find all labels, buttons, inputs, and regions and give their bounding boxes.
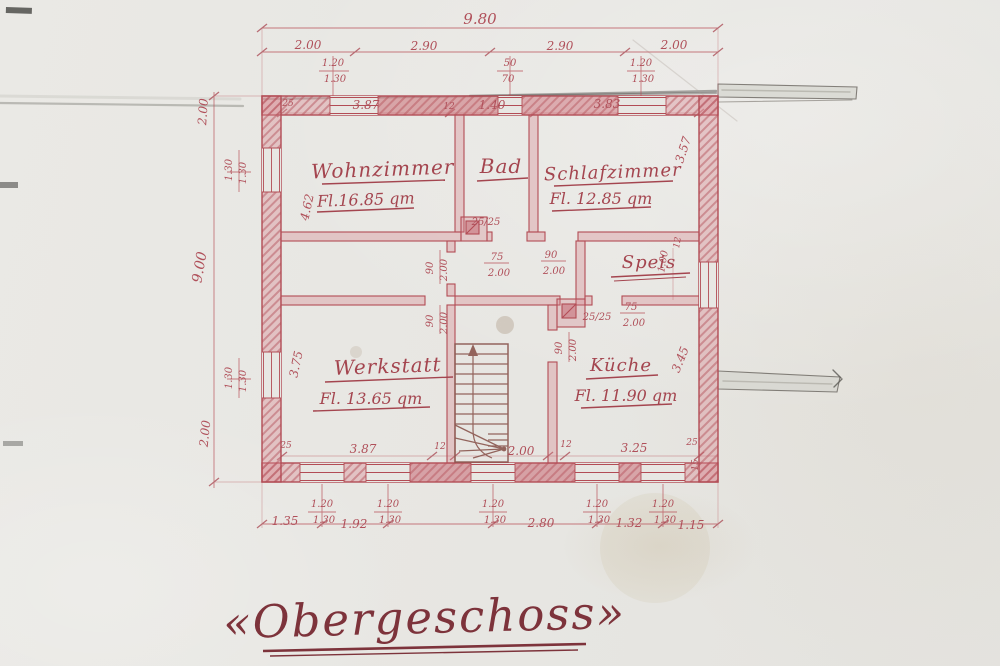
dim-door-kueche-w: 90 bbox=[554, 341, 565, 354]
sheet-title-text: «Obergeschoss» bbox=[223, 586, 627, 650]
room-area-wohnzimmer: Fl.16.85 qm bbox=[316, 188, 415, 210]
window-left-1 bbox=[262, 148, 281, 192]
dim-door-speis-h: 2.00 bbox=[622, 318, 646, 329]
chimney-kueche bbox=[557, 299, 585, 327]
dim-int-top-schlafzimmer: 3.83 bbox=[594, 97, 621, 111]
window-left-2 bbox=[262, 352, 281, 398]
dim-bot-win3-b: 1.30 bbox=[484, 515, 507, 526]
room-label-bad: Bad bbox=[479, 154, 522, 178]
dim-left-win1-a: 1.30 bbox=[224, 158, 235, 181]
window-top-3 bbox=[618, 96, 666, 115]
dim-int-top-wall: 12 bbox=[443, 102, 455, 112]
dim-top-seg1: 2.00 bbox=[294, 38, 322, 52]
room-label-werkstatt: Werkstatt bbox=[333, 352, 442, 380]
dim-bot-seg1: 1.35 bbox=[272, 514, 299, 528]
dim-door-hall2-w: 90 bbox=[425, 314, 436, 327]
dim-top-seg2: 2.90 bbox=[410, 39, 438, 53]
dim-left-win1-b: 1.30 bbox=[238, 161, 249, 184]
dim-bot-win5-b: 1.30 bbox=[654, 515, 677, 526]
dim-top-seg3: 2.90 bbox=[546, 39, 574, 53]
dim-int-bot-wall-r2: 15 bbox=[691, 459, 701, 471]
dim-int-bot-wall-m2: 12 bbox=[560, 440, 572, 450]
dim-bot-win2-b: 1.30 bbox=[379, 515, 402, 526]
dim-door-hall1-w: 90 bbox=[425, 261, 436, 274]
dim-top-total: 9.80 bbox=[463, 10, 497, 28]
scanned-floorplan-sheet: 9.80 2.00 2.90 2.90 2.00 1.20 1.30 50 70… bbox=[0, 0, 1000, 666]
dim-int-bot-wall-r: 25 bbox=[685, 438, 698, 448]
dim-top-win2-b: 70 bbox=[502, 74, 515, 85]
dim-bot-seg5: 1.15 bbox=[678, 518, 705, 532]
dim-door-hall2-h: 2.00 bbox=[439, 311, 450, 335]
dim-int-bot-wall-l: 25 bbox=[279, 441, 292, 451]
dim-left-win2-a: 1.30 bbox=[224, 366, 235, 389]
dim-door-hall1-h: 2.00 bbox=[439, 258, 450, 282]
window-bottom-1 bbox=[300, 463, 344, 482]
dim-left-total: 9.00 bbox=[189, 250, 210, 284]
dim-int-bot-wall-m1: 12 bbox=[434, 442, 446, 452]
dim-left-win2-b: 1.30 bbox=[238, 369, 249, 392]
dim-int-bot-kueche: 3.25 bbox=[621, 441, 648, 455]
dim-bot-win4-a: 1.20 bbox=[586, 499, 609, 510]
window-bottom-2 bbox=[366, 463, 410, 482]
dim-bot-seg2: 1.92 bbox=[341, 517, 368, 531]
dim-chimney-kueche: 25/25 bbox=[582, 312, 612, 323]
dim-wall-25-topleft: 25 bbox=[281, 99, 294, 109]
dim-int-top-wohnzimmer: 3.87 bbox=[353, 98, 380, 112]
dim-top-win1-b: 1.30 bbox=[324, 74, 347, 85]
dim-top-win1-a: 1.20 bbox=[322, 58, 345, 69]
dim-door-schlaf-h: 2.00 bbox=[542, 266, 566, 277]
window-bottom-4 bbox=[575, 463, 619, 482]
dim-bot-win2-a: 1.20 bbox=[377, 499, 400, 510]
dim-door-schlaf-w: 90 bbox=[545, 250, 558, 261]
dim-bot-win5-a: 1.20 bbox=[652, 499, 675, 510]
edge-mark bbox=[6, 7, 32, 14]
dim-werkstatt-depth: 3.75 bbox=[286, 350, 305, 379]
room-area-kueche: Fl. 11.90 qm bbox=[574, 386, 678, 405]
dim-bot-seg4: 1.32 bbox=[616, 516, 643, 530]
stair-direction-arrow bbox=[468, 344, 478, 356]
dim-door-bad-h: 2.00 bbox=[487, 268, 511, 279]
dim-kueche-depth: 3.45 bbox=[669, 344, 692, 374]
dim-bot-win4-b: 1.30 bbox=[588, 515, 611, 526]
window-bottom-5 bbox=[641, 463, 685, 482]
dim-int-top-bad: 1.40 bbox=[479, 98, 506, 112]
dim-bot-win1-a: 1.20 bbox=[311, 499, 334, 510]
edge-mark bbox=[3, 441, 23, 446]
staircase bbox=[455, 344, 508, 462]
dim-left-seg-top: 2.00 bbox=[195, 98, 211, 127]
room-area-schlafzimmer: Fl. 12.85 qm bbox=[549, 189, 653, 208]
dim-top-win3-a: 1.20 bbox=[630, 58, 653, 69]
dim-wohnzimmer-depth: 4.62 bbox=[297, 193, 316, 223]
dim-top-win3-b: 1.30 bbox=[632, 74, 655, 85]
dim-top-seg4: 2.00 bbox=[660, 38, 688, 52]
room-area-werkstatt: Fl. 13.65 qm bbox=[319, 389, 423, 408]
dim-door-kueche-h: 2.00 bbox=[568, 338, 579, 362]
room-label-wohnzimmer: Wohnzimmer bbox=[311, 154, 455, 183]
dim-int-bot-stair: 2.00 bbox=[507, 444, 535, 458]
chimneys bbox=[461, 217, 585, 327]
dim-door-speis-w: 75 bbox=[625, 302, 638, 313]
window-right-1 bbox=[699, 262, 718, 308]
dim-int-bot-werkstatt: 3.87 bbox=[350, 442, 377, 456]
window-bottom-3 bbox=[471, 463, 515, 482]
dim-bot-win1-b: 1.30 bbox=[313, 515, 336, 526]
dim-bot-win3-a: 1.20 bbox=[482, 499, 505, 510]
room-labels: Wohnzimmer Fl.16.85 qm Bad Schlafzimmer … bbox=[311, 154, 690, 411]
dim-door-bad-w: 75 bbox=[491, 252, 504, 263]
dim-right-window-wall: 12 bbox=[672, 236, 684, 249]
sheet-title: «Obergeschoss» bbox=[223, 586, 627, 656]
floorplan-drawing: 9.80 2.00 2.90 2.90 2.00 1.20 1.30 50 70… bbox=[0, 0, 1000, 666]
room-label-kueche: Küche bbox=[589, 355, 652, 376]
dim-top-win2-a: 50 bbox=[504, 58, 517, 69]
dim-chimney-bad: 25/25 bbox=[471, 217, 501, 228]
edge-mark bbox=[0, 182, 18, 188]
dim-bot-seg3: 2.80 bbox=[527, 516, 555, 530]
room-label-speis: Speis bbox=[622, 252, 677, 273]
dim-left-seg-bottom: 2.00 bbox=[197, 419, 214, 448]
